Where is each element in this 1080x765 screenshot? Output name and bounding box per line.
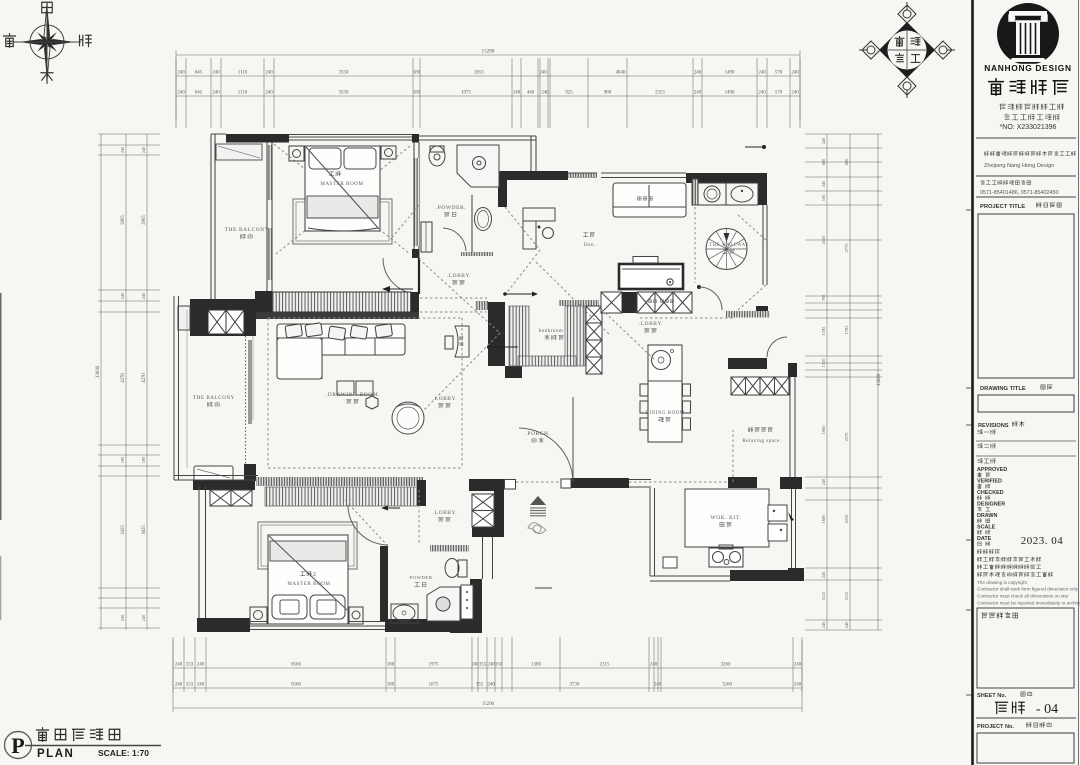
svg-text:3025: 3025: [142, 525, 147, 535]
svg-text:3550: 3550: [339, 71, 349, 76]
svg-text:CHECKED: CHECKED: [977, 490, 1004, 496]
svg-text:240: 240: [212, 71, 220, 76]
svg-text:240: 240: [650, 663, 658, 668]
svg-text:680: 680: [844, 158, 849, 165]
svg-text:240: 240: [758, 71, 766, 76]
svg-text:Zhejiang Nang Hong Design: Zhejiang Nang Hong Design: [984, 163, 1054, 169]
svg-text:3425: 3425: [121, 525, 126, 535]
svg-text:Contractor must be reported im: Contractor must be reported immediately …: [977, 600, 1080, 605]
svg-text:240: 240: [141, 146, 146, 153]
svg-text:1975: 1975: [429, 663, 439, 668]
svg-text:2: 2: [313, 572, 316, 578]
svg-text:355: 355: [476, 683, 484, 688]
svg-text:Relaxing space.: Relaxing space.: [742, 439, 781, 444]
svg-text:SHEET No.: SHEET No.: [977, 693, 1007, 699]
svg-text:240: 240: [141, 292, 146, 299]
svg-text:180: 180: [141, 456, 146, 463]
svg-text:4270: 4270: [121, 373, 126, 383]
svg-text:P: P: [11, 733, 24, 758]
svg-text:240: 240: [694, 71, 702, 76]
svg-text:240: 240: [141, 614, 146, 621]
svg-text:240: 240: [177, 91, 185, 96]
svg-text:240: 240: [541, 91, 549, 96]
svg-text:333: 333: [186, 663, 194, 668]
svg-text:1380: 1380: [531, 663, 541, 668]
svg-text:960: 960: [604, 91, 612, 96]
svg-text:1680: 1680: [821, 514, 826, 524]
svg-text:3260: 3260: [722, 683, 732, 688]
svg-text:240: 240: [844, 621, 849, 628]
svg-text:PROJECT No.: PROJECT No.: [977, 724, 1014, 730]
svg-text:APPROVED: APPROVED: [977, 467, 1007, 473]
svg-text:2655: 2655: [474, 71, 484, 76]
svg-text:4040: 4040: [616, 71, 626, 76]
svg-text:THE BALCONY: THE BALCONY: [225, 227, 269, 233]
svg-text:240: 240: [120, 146, 125, 153]
svg-text:240: 240: [513, 91, 521, 96]
svg-text:1490: 1490: [725, 71, 735, 76]
svg-text:1110: 1110: [238, 91, 248, 96]
svg-text:240: 240: [120, 614, 125, 621]
svg-text:- 04: - 04: [1036, 702, 1058, 717]
svg-text:.LOBBY.: .LOBBY.: [639, 321, 663, 327]
svg-text:180: 180: [387, 683, 395, 688]
svg-text:WOK. KIT.: WOK. KIT.: [711, 515, 742, 521]
svg-text:240: 240: [212, 91, 220, 96]
svg-text:THE BALCONY: THE BALCONY: [193, 396, 235, 401]
svg-text:2965: 2965: [121, 215, 126, 225]
svg-text:240: 240: [120, 292, 125, 299]
svg-text:1675: 1675: [429, 683, 439, 688]
svg-text:REVISIONS: REVISIONS: [978, 423, 1009, 429]
svg-text:DINING ROOM: DINING ROOM: [645, 411, 684, 416]
svg-text:MASTER ROOM: MASTER ROOM: [287, 582, 330, 587]
svg-text:2570: 2570: [844, 432, 849, 442]
svg-text:1310: 1310: [821, 358, 826, 368]
svg-text:.LOBBY.: .LOBBY.: [447, 273, 471, 279]
svg-text:240: 240: [821, 478, 826, 485]
svg-text:3730: 3730: [570, 683, 580, 688]
svg-text:.POWDER.: .POWDER.: [408, 575, 435, 580]
svg-text:6560: 6560: [291, 683, 301, 688]
svg-text:925: 925: [565, 91, 573, 96]
svg-text:240: 240: [265, 91, 273, 96]
svg-text:MASTER ROOM: MASTER ROOM: [320, 182, 363, 187]
svg-text:PLAN: PLAN: [37, 748, 74, 760]
svg-text:.PORCH.: .PORCH.: [526, 431, 551, 437]
svg-text:15290: 15290: [482, 702, 495, 707]
svg-text:240: 240: [758, 91, 766, 96]
svg-text:*NO: X233021396: *NO: X233021396: [1000, 124, 1057, 131]
svg-text:DATE: DATE: [977, 536, 992, 542]
svg-text:.THE HALLWAY.: .THE HALLWAY.: [707, 243, 750, 248]
svg-text:.POWDER.: .POWDER.: [436, 205, 466, 211]
svg-text:240: 240: [694, 91, 702, 96]
svg-text:.LOBBY.: .LOBBY.: [433, 510, 457, 516]
svg-text:1185: 1185: [821, 326, 826, 335]
svg-text:bookroom: bookroom: [539, 329, 564, 334]
svg-text:570: 570: [775, 71, 783, 76]
svg-text:240: 240: [487, 683, 495, 688]
svg-text:240: 240: [654, 683, 662, 688]
svg-text:.LOBBY.: .LOBBY.: [433, 396, 457, 402]
svg-text:240: 240: [265, 71, 273, 76]
svg-text:2770: 2770: [844, 243, 849, 253]
svg-text:180: 180: [413, 71, 421, 76]
svg-text:240: 240: [177, 71, 185, 76]
svg-text:2100: 2100: [821, 235, 826, 245]
svg-text:1975: 1975: [461, 91, 471, 96]
svg-text:SCALE: SCALE: [977, 525, 996, 531]
svg-text:0571-85401486, 0571-85402450: 0571-85401486, 0571-85402450: [980, 190, 1059, 196]
svg-text:570: 570: [775, 91, 783, 96]
svg-text:240: 240: [791, 71, 799, 76]
svg-text:180: 180: [120, 456, 125, 463]
svg-text:SCALE: 1:70: SCALE: 1:70: [98, 748, 149, 758]
svg-text:13020: 13020: [877, 373, 882, 386]
svg-text:240: 240: [539, 71, 547, 76]
svg-text:6560: 6560: [291, 663, 301, 668]
svg-text:3260: 3260: [721, 663, 731, 668]
svg-text:240: 240: [821, 571, 826, 578]
svg-text:240: 240: [197, 683, 205, 688]
svg-text:240: 240: [791, 91, 799, 96]
svg-text:240: 240: [175, 663, 183, 668]
svg-text:DESIGNER: DESIGNER: [977, 502, 1005, 508]
svg-text:VERIFIED: VERIFIED: [977, 479, 1002, 485]
svg-text:15290: 15290: [482, 49, 495, 55]
svg-text:180: 180: [413, 91, 421, 96]
svg-text:2315: 2315: [600, 663, 610, 668]
svg-text:Contractor shall work form fig: Contractor shall work form figured dimen…: [977, 587, 1079, 592]
svg-text:680: 680: [821, 158, 826, 165]
svg-text:333: 333: [186, 683, 194, 688]
svg-text:The drawing is copyright: The drawing is copyright: [977, 580, 1028, 585]
svg-text:645: 645: [195, 91, 203, 96]
svg-text:240: 240: [821, 137, 826, 144]
svg-text:Den.: Den.: [584, 243, 596, 248]
svg-text:240: 240: [821, 180, 826, 187]
svg-text:1960: 1960: [821, 425, 826, 435]
svg-text:PROJECT TITLE: PROJECT TITLE: [980, 204, 1025, 210]
svg-text:1400: 1400: [725, 91, 735, 96]
svg-text:NANHONG DESIGN: NANHONG DESIGN: [984, 63, 1072, 73]
svg-text:150: 150: [495, 663, 503, 668]
svg-text:355: 355: [479, 663, 487, 668]
svg-text:3550: 3550: [339, 91, 349, 96]
svg-text:240: 240: [794, 663, 802, 668]
svg-text:240: 240: [821, 621, 826, 628]
svg-text:DRAWING TITLE: DRAWING TITLE: [980, 386, 1026, 392]
svg-text:1115: 1115: [821, 591, 826, 600]
svg-text:2059: 2059: [844, 514, 849, 524]
svg-text:440: 440: [527, 91, 535, 96]
svg-text:2023. 04: 2023. 04: [1021, 535, 1064, 547]
svg-text:790: 790: [821, 294, 826, 301]
svg-text:1115: 1115: [844, 591, 849, 600]
svg-text:2355: 2355: [655, 91, 665, 96]
svg-text:180: 180: [387, 663, 395, 668]
svg-text:1110: 1110: [238, 71, 248, 76]
svg-text:240: 240: [197, 663, 205, 668]
svg-text:240: 240: [794, 683, 802, 688]
svg-text:240: 240: [175, 683, 183, 688]
svg-text:.DRAWING ROOM.: .DRAWING ROOM.: [326, 392, 380, 398]
svg-text:100: 100: [821, 194, 826, 201]
svg-text:1785: 1785: [844, 325, 849, 335]
svg-text:645: 645: [195, 71, 203, 76]
svg-text:2965: 2965: [142, 215, 147, 225]
svg-text:Contractor must check all dime: Contractor must check all dimensions on …: [977, 594, 1069, 599]
svg-text:4270: 4270: [142, 373, 147, 383]
svg-text:13030: 13030: [96, 365, 101, 378]
svg-text:DRAWN: DRAWN: [977, 513, 997, 519]
